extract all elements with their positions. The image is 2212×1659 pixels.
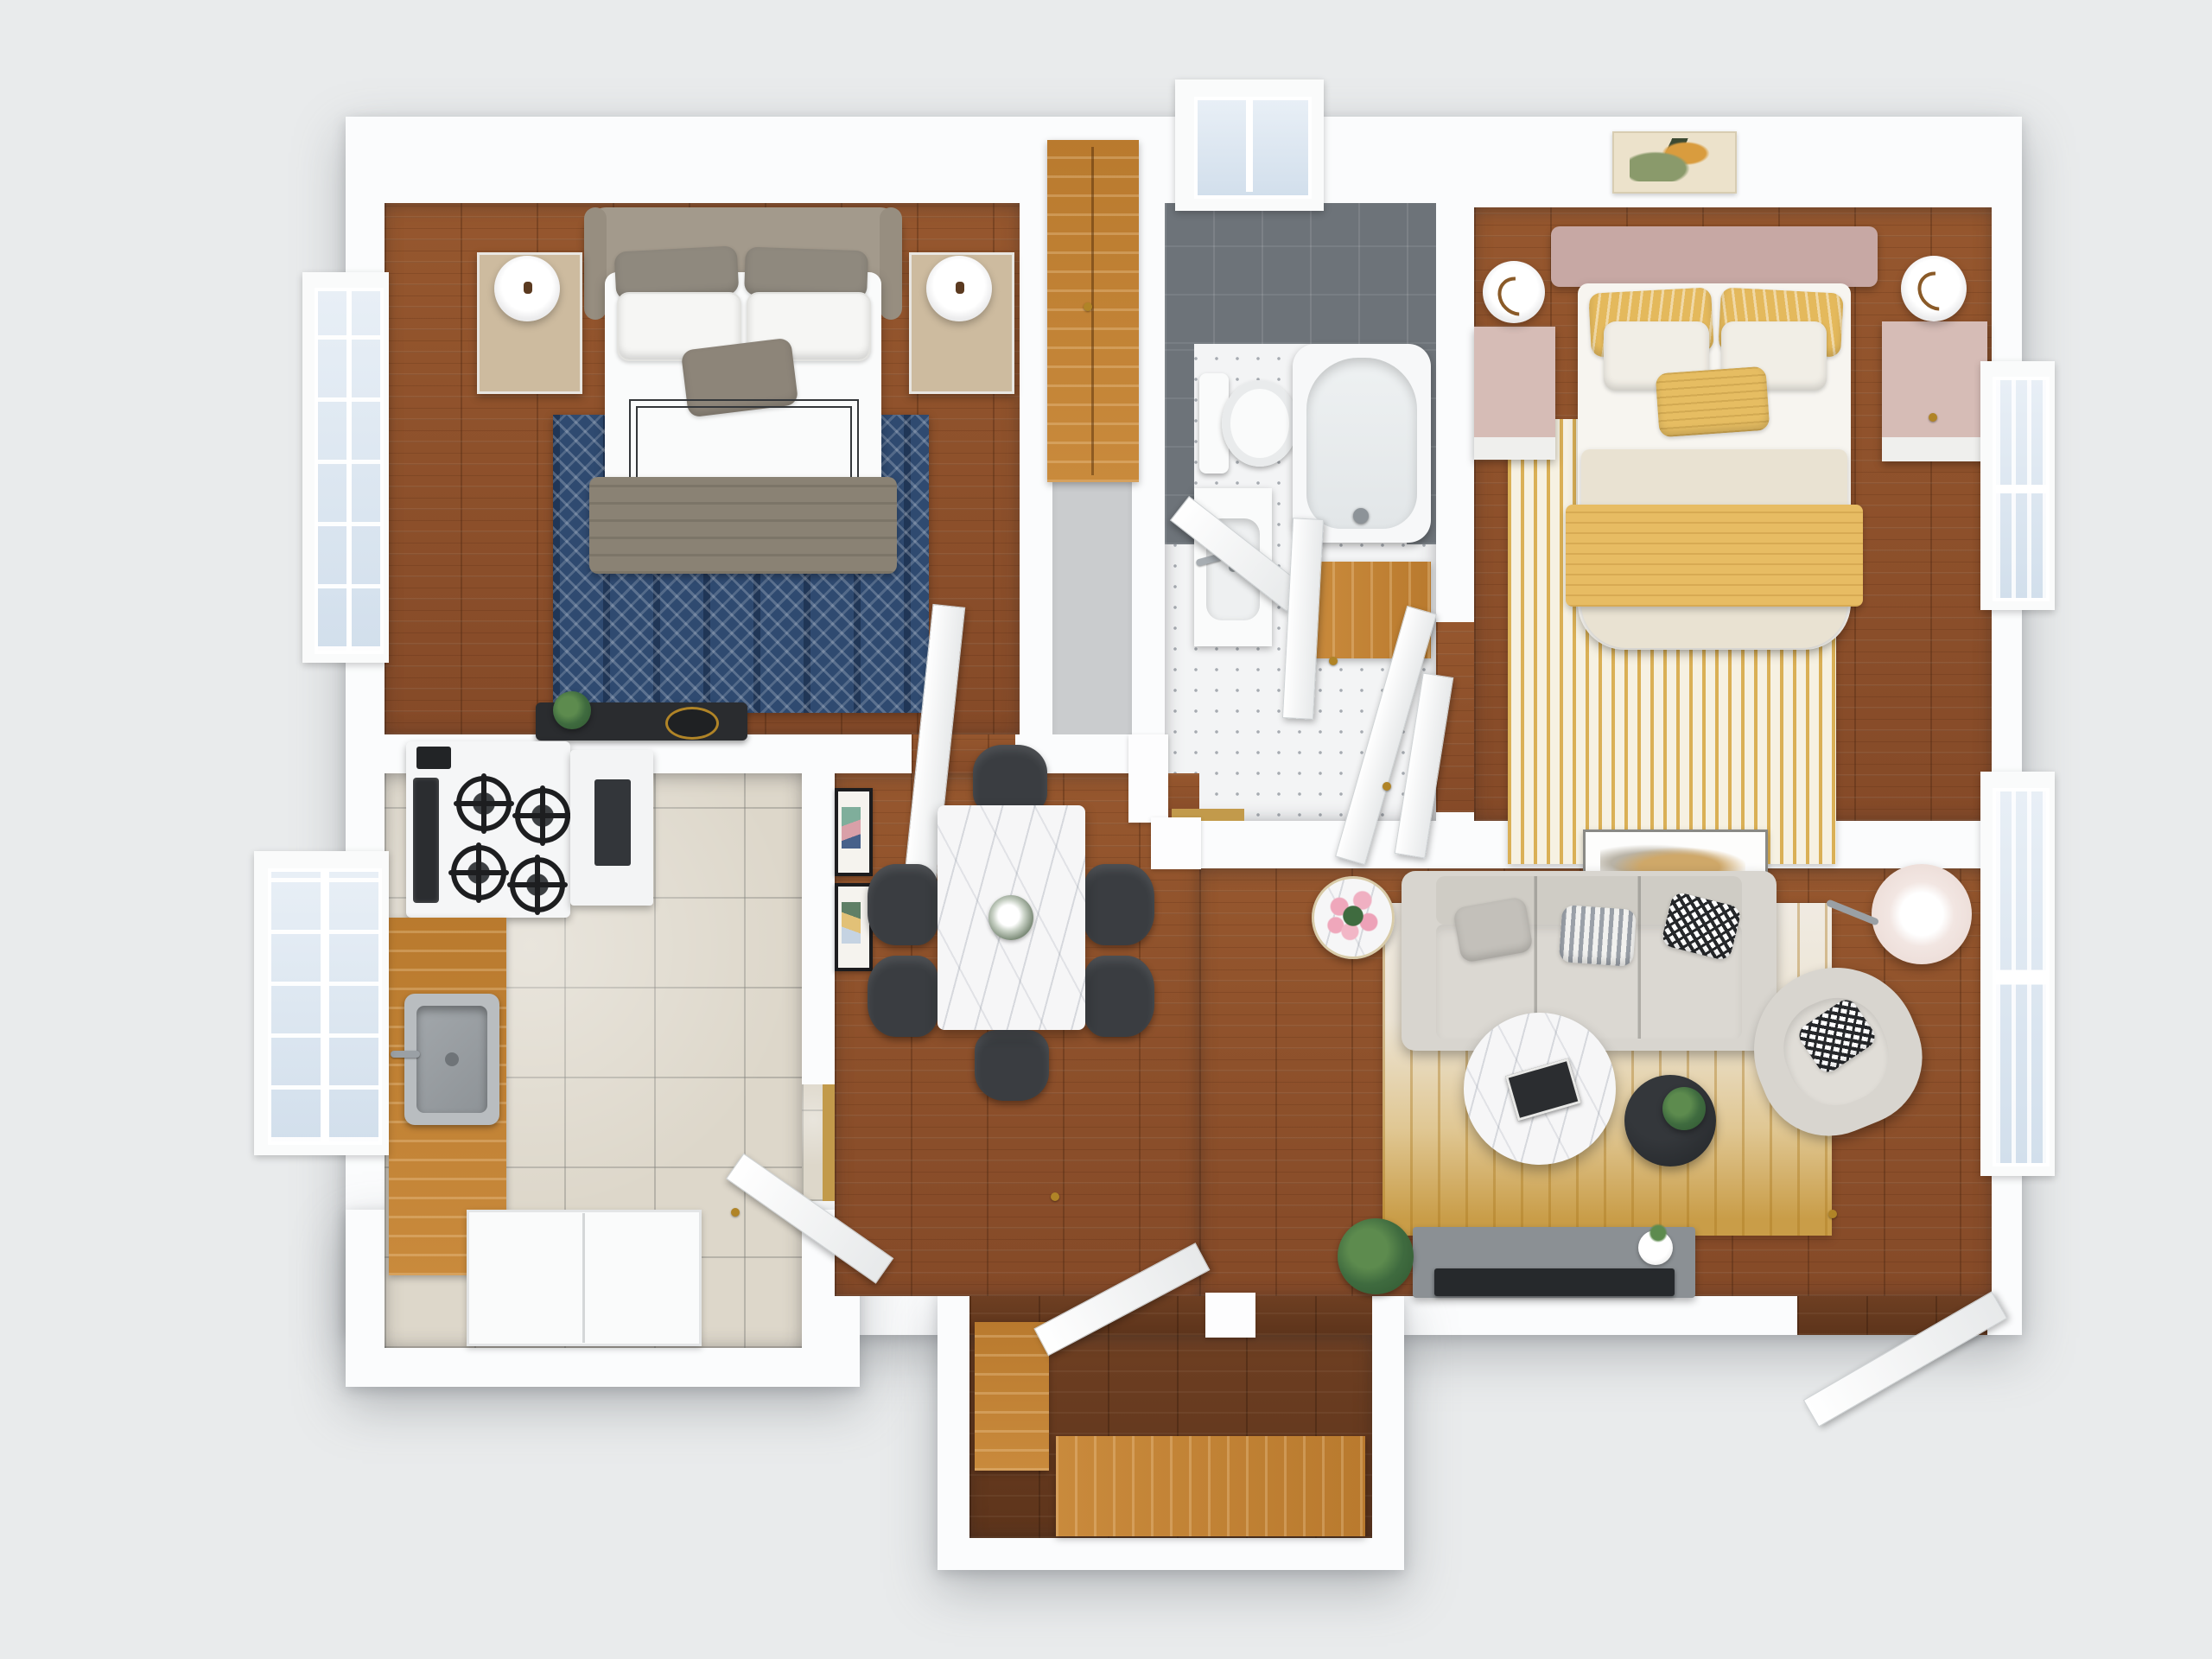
kitchen-sink-drain [445, 1052, 459, 1066]
bedroom1-headboard-wing-right [880, 207, 902, 320]
stove-control-panel [416, 747, 451, 769]
gallery-frame-1-art [842, 807, 861, 849]
closet-wardrobe-seam [1091, 147, 1094, 475]
closet-wardrobe-knob [1084, 302, 1092, 311]
bedroom2-window-glass [1993, 377, 2050, 601]
bedroom1-throw-blanket [589, 477, 897, 574]
bedroom2-yellow-throw [1566, 505, 1863, 607]
bathroom-window-mullion [1246, 97, 1253, 192]
hall-door-knob-1 [1329, 657, 1338, 665]
entry-console [1056, 1436, 1365, 1536]
stove-burner-4 [510, 857, 565, 912]
dining-chair-left-2 [868, 956, 938, 1037]
stove-burner-1 [456, 776, 512, 831]
kitchen-window-glass [268, 868, 382, 1145]
bathtub-basin [1306, 358, 1417, 529]
entry-bench [975, 1322, 1049, 1471]
bedroom1-lamp-finial-left [524, 282, 532, 294]
dining-chair-right-2 [1084, 956, 1154, 1037]
dining-chair-right-1 [1084, 864, 1154, 945]
pink-tulips [1322, 885, 1384, 947]
bedroom1-headboard-wing-left [584, 207, 607, 320]
bedroom2-headboard [1551, 226, 1878, 287]
gallery-frame-2-art [842, 902, 861, 944]
living-wall-cap [1151, 817, 1201, 869]
sofa-pillow-striped [1559, 905, 1637, 967]
floor-plan-render [0, 0, 2212, 1659]
floor-plant [1338, 1218, 1414, 1294]
living-window-glass [1993, 788, 2050, 1166]
entry-wall-stub [1205, 1293, 1255, 1338]
dining-centerpiece [988, 895, 1033, 940]
living-door-knob [1828, 1210, 1837, 1218]
bedroom2-nightstand-right [1882, 321, 1987, 461]
bedroom2-lumbar-pillow [1656, 366, 1770, 438]
console-vase-greens [1647, 1222, 1669, 1244]
bedroom1-window-glass [315, 288, 384, 654]
stove-burner-2 [515, 788, 570, 843]
microwave-window [594, 779, 631, 866]
bedroom2-nightstand-left [1474, 327, 1555, 460]
bedroom1-dresser-tray [665, 707, 719, 740]
bathroom-wall-tile-top [1165, 203, 1436, 344]
bath-wall-cap [1128, 734, 1168, 823]
front-door-knob [1051, 1192, 1059, 1201]
bedroom2-nightstand-knob [1929, 413, 1937, 422]
stove-burner-3 [451, 845, 506, 900]
television [1434, 1268, 1675, 1296]
dining-chair-left-1 [868, 864, 938, 945]
floor-lamp-shade [1872, 864, 1972, 964]
toilet-bowl [1222, 380, 1298, 467]
kitchen-cabinet-seam [582, 1213, 585, 1343]
kitchen-faucet [391, 1051, 420, 1058]
kitchen-threshold [823, 1084, 835, 1201]
dining-chair-bottom [975, 1030, 1049, 1101]
bathtub-faucet [1353, 508, 1369, 524]
bedroom1-lamp-finial-right [956, 282, 964, 294]
bathroom-window-glass [1194, 97, 1312, 199]
hall-door-knob-2 [1382, 782, 1391, 791]
side-table-plant [1662, 1087, 1706, 1130]
oven-window [413, 778, 439, 903]
bedroom1-dresser-plant [553, 691, 591, 729]
dining-chair-top [973, 745, 1047, 814]
bedroom2-wall-art-leaf [1630, 138, 1716, 181]
kitchen-door-knob [731, 1208, 740, 1217]
